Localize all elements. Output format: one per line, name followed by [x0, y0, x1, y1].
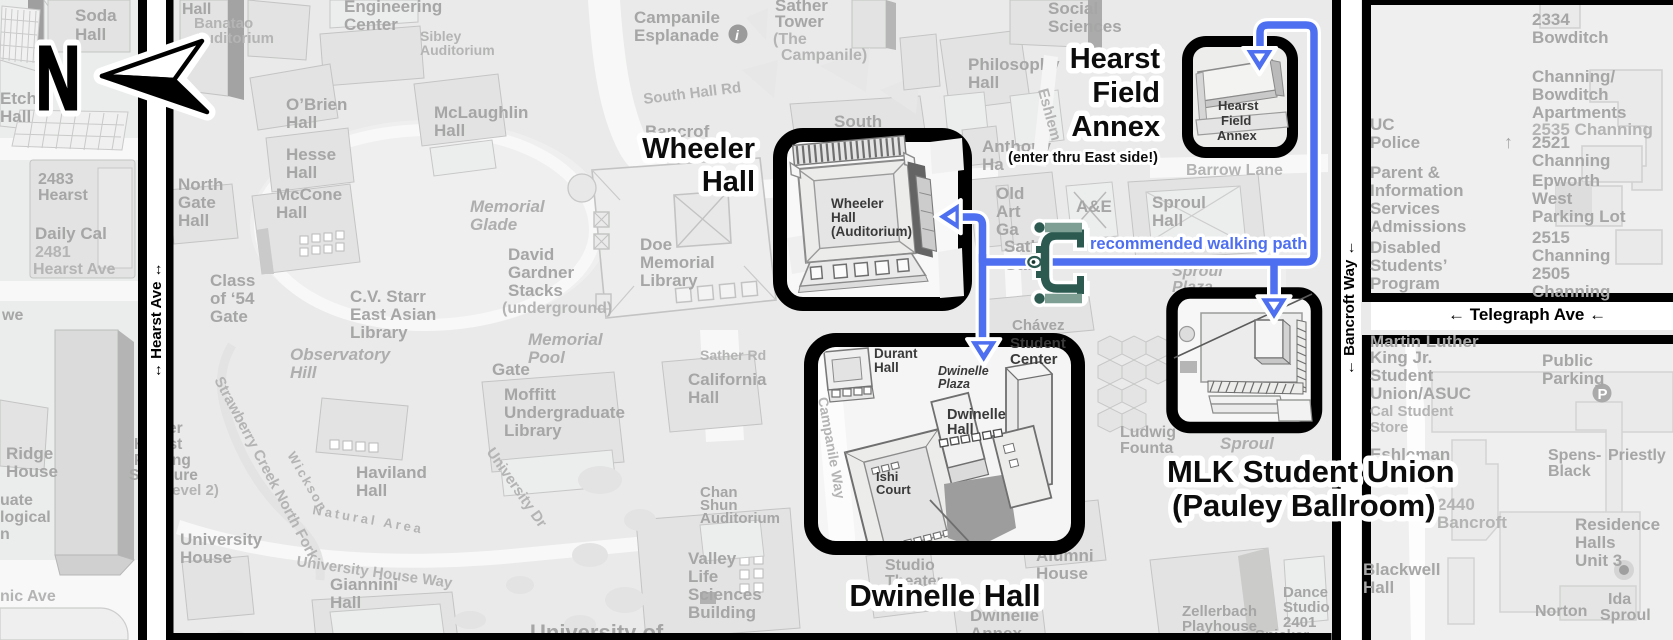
- svg-text:Chávez: Chávez: [1012, 317, 1065, 334]
- svg-text:Daily Cal: Daily Cal: [35, 224, 107, 243]
- svg-text:P: P: [1598, 386, 1608, 403]
- svg-text:Bowditch: Bowditch: [1532, 28, 1609, 47]
- svg-text:2481: 2481: [35, 244, 71, 261]
- svg-text:← Bancroft Way ←: ← Bancroft Way ←: [1341, 241, 1358, 375]
- svg-text:Glade: Glade: [470, 215, 517, 234]
- svg-text:Barrow Lane: Barrow Lane: [1186, 162, 1283, 179]
- svg-text:David: David: [508, 245, 554, 264]
- svg-text:Dwinelle: Dwinelle: [938, 364, 989, 378]
- svg-text:University: University: [180, 530, 263, 549]
- svg-text:Information: Information: [1370, 181, 1464, 200]
- svg-text:Public: Public: [1542, 351, 1593, 370]
- svg-text:Admissions: Admissions: [1370, 217, 1466, 236]
- svg-text:McCone: McCone: [276, 185, 342, 204]
- svg-text:(The: (The: [773, 31, 807, 48]
- svg-text:North: North: [178, 175, 223, 194]
- svg-text:Dwinelle Hall: Dwinelle Hall: [849, 578, 1040, 613]
- svg-text:Wheeler: Wheeler: [642, 133, 755, 165]
- svg-text:Gate: Gate: [210, 307, 248, 326]
- svg-text:Stacks: Stacks: [508, 281, 563, 300]
- svg-text:Founta: Founta: [1120, 440, 1173, 457]
- svg-text:nic Ave: nic Ave: [0, 588, 56, 605]
- svg-text:Valley: Valley: [688, 549, 737, 568]
- svg-text:O’Brien: O’Brien: [286, 95, 347, 114]
- svg-text:Hall: Hall: [286, 163, 317, 182]
- svg-text:Sproul: Sproul: [1600, 607, 1651, 624]
- svg-text:Hall: Hall: [1152, 211, 1183, 230]
- svg-text:Sproul: Sproul: [1220, 434, 1275, 453]
- svg-text:Doe: Doe: [640, 235, 672, 254]
- svg-text:Hall: Hall: [434, 121, 465, 140]
- svg-text:2521: 2521: [1532, 133, 1570, 152]
- svg-text:Campanile: Campanile: [634, 8, 720, 27]
- svg-text:Engineering: Engineering: [344, 0, 442, 16]
- svg-text:Sciences: Sciences: [1048, 17, 1122, 36]
- svg-text:Sproul: Sproul: [1152, 193, 1206, 212]
- svg-text:Ridge: Ridge: [6, 444, 53, 463]
- svg-text:Epworth: Epworth: [1532, 171, 1600, 190]
- svg-text:Art: Art: [996, 202, 1021, 221]
- svg-text:Channing: Channing: [1532, 151, 1610, 170]
- svg-text:Channing/: Channing/: [1532, 67, 1615, 86]
- svg-text:Store: Store: [1370, 419, 1408, 436]
- svg-text:Bancroft: Bancroft: [1437, 513, 1507, 532]
- svg-text:Center: Center: [1010, 351, 1058, 368]
- svg-text:Field: Field: [1092, 77, 1160, 109]
- svg-text:Life: Life: [688, 567, 718, 586]
- svg-text:↔ Hearst Ave ↔: ↔ Hearst Ave ↔: [148, 262, 165, 378]
- svg-text:Hall: Hall: [1363, 578, 1394, 597]
- svg-text:Hesse: Hesse: [286, 145, 336, 164]
- svg-text:Haviland: Haviland: [356, 463, 427, 482]
- svg-text:Field: Field: [1221, 113, 1251, 128]
- svg-text:Students’: Students’: [1370, 256, 1447, 275]
- svg-text:Hearst Ave: Hearst Ave: [33, 261, 116, 278]
- svg-text:Hall: Hall: [178, 211, 209, 230]
- svg-text:Union/ASUC: Union/ASUC: [1370, 384, 1471, 403]
- svg-text:Ludwig: Ludwig: [1120, 424, 1176, 441]
- svg-text:Hall: Hall: [831, 210, 856, 225]
- svg-text:N: N: [36, 28, 80, 129]
- svg-text:Hall: Hall: [688, 388, 719, 407]
- svg-text:n: n: [0, 526, 10, 543]
- svg-text:House: House: [1036, 564, 1088, 583]
- svg-text:2515: 2515: [1532, 228, 1570, 247]
- svg-text:Auditorium: Auditorium: [420, 42, 495, 58]
- svg-text:Services: Services: [1370, 199, 1440, 218]
- svg-text:King Jr.: King Jr.: [1370, 348, 1432, 367]
- svg-text:we: we: [1, 307, 23, 324]
- svg-text:Annex: Annex: [1217, 128, 1258, 143]
- svg-text:East Asian: East Asian: [350, 305, 436, 324]
- svg-text:Dwinelle: Dwinelle: [947, 407, 1006, 423]
- svg-text:Hearst: Hearst: [38, 187, 88, 204]
- svg-text:A&E: A&E: [1076, 197, 1112, 216]
- svg-text:Bowditch: Bowditch: [1532, 85, 1609, 104]
- svg-text:Observatory: Observatory: [290, 345, 392, 364]
- svg-text:Hill: Hill: [290, 363, 318, 382]
- svg-text:McLaughlin: McLaughlin: [434, 103, 528, 122]
- svg-text:(Auditorium): (Auditorium): [831, 224, 912, 239]
- svg-text:Unit 3: Unit 3: [1575, 551, 1622, 570]
- svg-text:Hall: Hall: [286, 113, 317, 132]
- svg-text:Police: Police: [1370, 133, 1420, 152]
- svg-text:Cal Student: Cal Student: [1370, 403, 1453, 420]
- svg-text:of ‘54: of ‘54: [210, 289, 255, 308]
- svg-text:Residence: Residence: [1575, 515, 1660, 534]
- svg-text:House: House: [180, 548, 232, 567]
- svg-text:Halls: Halls: [1575, 533, 1616, 552]
- svg-text:Tower: Tower: [775, 12, 824, 31]
- svg-text:Library: Library: [504, 421, 562, 440]
- svg-text:← Telegraph Ave ←: ← Telegraph Ave ←: [1448, 305, 1606, 324]
- svg-text:Pool: Pool: [528, 348, 566, 367]
- svg-text:Hall: Hall: [947, 422, 974, 438]
- svg-text:C.V. Starr: C.V. Starr: [350, 287, 426, 306]
- svg-text:Moffitt: Moffitt: [504, 385, 556, 404]
- svg-text:Norton: Norton: [1535, 603, 1587, 620]
- svg-text:Ha: Ha: [982, 155, 1004, 174]
- svg-text:Sather Rd: Sather Rd: [700, 347, 766, 363]
- svg-text:Playhouse: Playhouse: [1182, 618, 1257, 635]
- svg-text:Undergraduate: Undergraduate: [504, 403, 625, 422]
- svg-text:Giannini: Giannini: [330, 575, 398, 594]
- svg-text:Black: Black: [1548, 463, 1591, 480]
- svg-text:Program: Program: [1370, 274, 1440, 293]
- svg-text:(Pauley Ballroom): (Pauley Ballroom): [1172, 488, 1436, 523]
- svg-text:Memorial: Memorial: [470, 197, 546, 216]
- svg-text:Annex: Annex: [1071, 111, 1160, 143]
- svg-text:Auditorium: Auditorium: [700, 510, 780, 527]
- svg-text:Student: Student: [1010, 335, 1066, 352]
- svg-text:Memorial: Memorial: [640, 253, 715, 272]
- svg-text:2483: 2483: [38, 171, 74, 188]
- svg-text:Gardner: Gardner: [508, 263, 575, 282]
- svg-text:Priestly: Priestly: [1608, 447, 1666, 464]
- svg-text:West: West: [1532, 189, 1573, 208]
- svg-text:2334: 2334: [1532, 10, 1570, 29]
- svg-text:Disabled: Disabled: [1370, 238, 1441, 257]
- svg-text:Parking Lot: Parking Lot: [1532, 207, 1626, 226]
- svg-text:logical: logical: [0, 509, 51, 526]
- svg-text:MLK Student Union: MLK Student Union: [1167, 454, 1455, 489]
- svg-text:Hall: Hall: [356, 481, 387, 500]
- svg-text:Center: Center: [344, 15, 398, 34]
- svg-text:(underground): (underground): [502, 300, 612, 317]
- svg-text:Hearst: Hearst: [1218, 98, 1259, 113]
- svg-text:Gate: Gate: [492, 360, 530, 379]
- svg-text:California: California: [688, 370, 767, 389]
- svg-text:Hall: Hall: [874, 360, 899, 375]
- svg-text:uate: uate: [0, 492, 33, 509]
- svg-text:Parking: Parking: [1542, 369, 1604, 388]
- svg-text:Old: Old: [996, 184, 1024, 203]
- svg-text:Esplanade: Esplanade: [634, 26, 719, 45]
- svg-text:Hall: Hall: [276, 203, 307, 222]
- svg-text:Sciences: Sciences: [688, 585, 762, 604]
- svg-text:Hall: Hall: [0, 107, 31, 126]
- svg-text:Plaza: Plaza: [938, 377, 970, 391]
- svg-text:Memorial: Memorial: [528, 330, 604, 349]
- svg-text:Durant: Durant: [874, 346, 918, 361]
- svg-text:Hall: Hall: [968, 73, 999, 92]
- svg-text:Library: Library: [640, 271, 698, 290]
- svg-text:UC: UC: [1370, 115, 1395, 134]
- svg-text:2440: 2440: [1437, 495, 1475, 514]
- svg-text:Hall: Hall: [702, 166, 755, 198]
- svg-text:Etch: Etch: [0, 89, 37, 108]
- svg-text:Wheeler: Wheeler: [831, 196, 884, 211]
- svg-text:recommended walking path: recommended walking path: [1090, 235, 1307, 253]
- svg-text:Campanile): Campanile): [781, 47, 867, 64]
- svg-text:Building: Building: [688, 603, 756, 622]
- svg-text:(enter thru East side!): (enter thru East side!): [1008, 150, 1158, 166]
- svg-text:Social: Social: [1048, 0, 1098, 18]
- svg-text:Channing: Channing: [1532, 246, 1610, 265]
- svg-text:Court: Court: [876, 482, 911, 497]
- svg-text:Soda: Soda: [75, 6, 117, 25]
- svg-text:Student: Student: [1370, 366, 1434, 385]
- svg-text:Ida: Ida: [1608, 591, 1631, 608]
- svg-text:Class: Class: [210, 271, 255, 290]
- svg-text:House: House: [6, 462, 58, 481]
- svg-text:2505: 2505: [1532, 264, 1570, 283]
- svg-text:Gate: Gate: [178, 193, 216, 212]
- svg-text:Hall: Hall: [330, 593, 361, 612]
- svg-text:Studio: Studio: [885, 557, 935, 574]
- svg-text:Parent &: Parent &: [1370, 163, 1440, 182]
- svg-text:Library: Library: [350, 323, 408, 342]
- svg-text:Channing: Channing: [1532, 282, 1610, 301]
- svg-text:↑: ↑: [1504, 132, 1513, 152]
- svg-text:Hearst: Hearst: [1070, 43, 1161, 75]
- svg-text:Spens-: Spens-: [1548, 447, 1601, 464]
- svg-text:Blackwell: Blackwell: [1363, 560, 1441, 579]
